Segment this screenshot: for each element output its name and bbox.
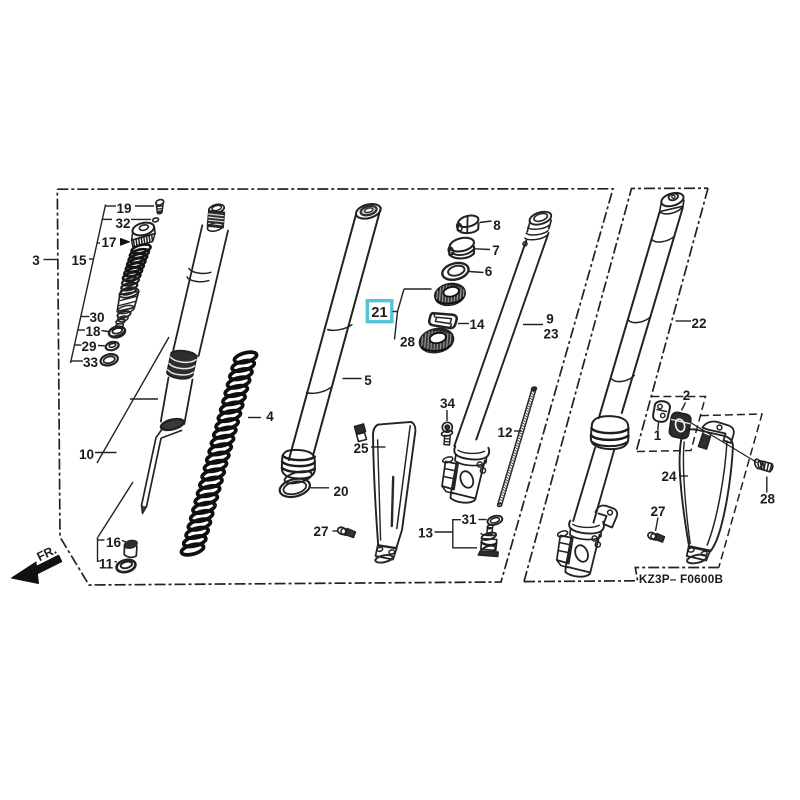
svg-text:30: 30 <box>89 310 104 325</box>
svg-text:28: 28 <box>400 335 416 350</box>
svg-text:KZ3P– F0600B: KZ3P– F0600B <box>639 572 723 586</box>
svg-text:19: 19 <box>116 201 131 216</box>
svg-text:10: 10 <box>79 447 94 462</box>
svg-text:9: 9 <box>546 312 554 327</box>
svg-text:11: 11 <box>99 557 114 572</box>
svg-text:29: 29 <box>81 339 96 354</box>
svg-text:28: 28 <box>760 492 776 507</box>
svg-text:20: 20 <box>333 484 348 499</box>
svg-text:23: 23 <box>543 327 559 342</box>
svg-text:24: 24 <box>661 469 677 484</box>
svg-text:21: 21 <box>371 305 387 321</box>
svg-text:8: 8 <box>493 218 501 233</box>
svg-text:2: 2 <box>683 388 691 403</box>
svg-text:14: 14 <box>469 317 485 332</box>
svg-text:18: 18 <box>85 324 101 339</box>
svg-text:34: 34 <box>440 396 456 411</box>
svg-text:22: 22 <box>691 316 706 331</box>
svg-text:25: 25 <box>353 441 369 456</box>
svg-text:5: 5 <box>364 373 372 388</box>
svg-text:27: 27 <box>650 504 665 519</box>
svg-text:13: 13 <box>418 526 434 541</box>
svg-text:16: 16 <box>106 535 122 550</box>
svg-text:7: 7 <box>492 243 500 258</box>
svg-text:6: 6 <box>485 264 493 279</box>
svg-text:4: 4 <box>266 409 274 424</box>
svg-text:27: 27 <box>313 524 328 539</box>
svg-text:17: 17 <box>101 235 116 250</box>
svg-text:33: 33 <box>83 355 99 370</box>
svg-text:1: 1 <box>654 428 662 443</box>
svg-text:31: 31 <box>461 512 477 527</box>
svg-text:15: 15 <box>71 253 87 268</box>
svg-text:12: 12 <box>497 425 512 440</box>
svg-text:3: 3 <box>32 253 40 268</box>
svg-text:32: 32 <box>115 216 130 231</box>
